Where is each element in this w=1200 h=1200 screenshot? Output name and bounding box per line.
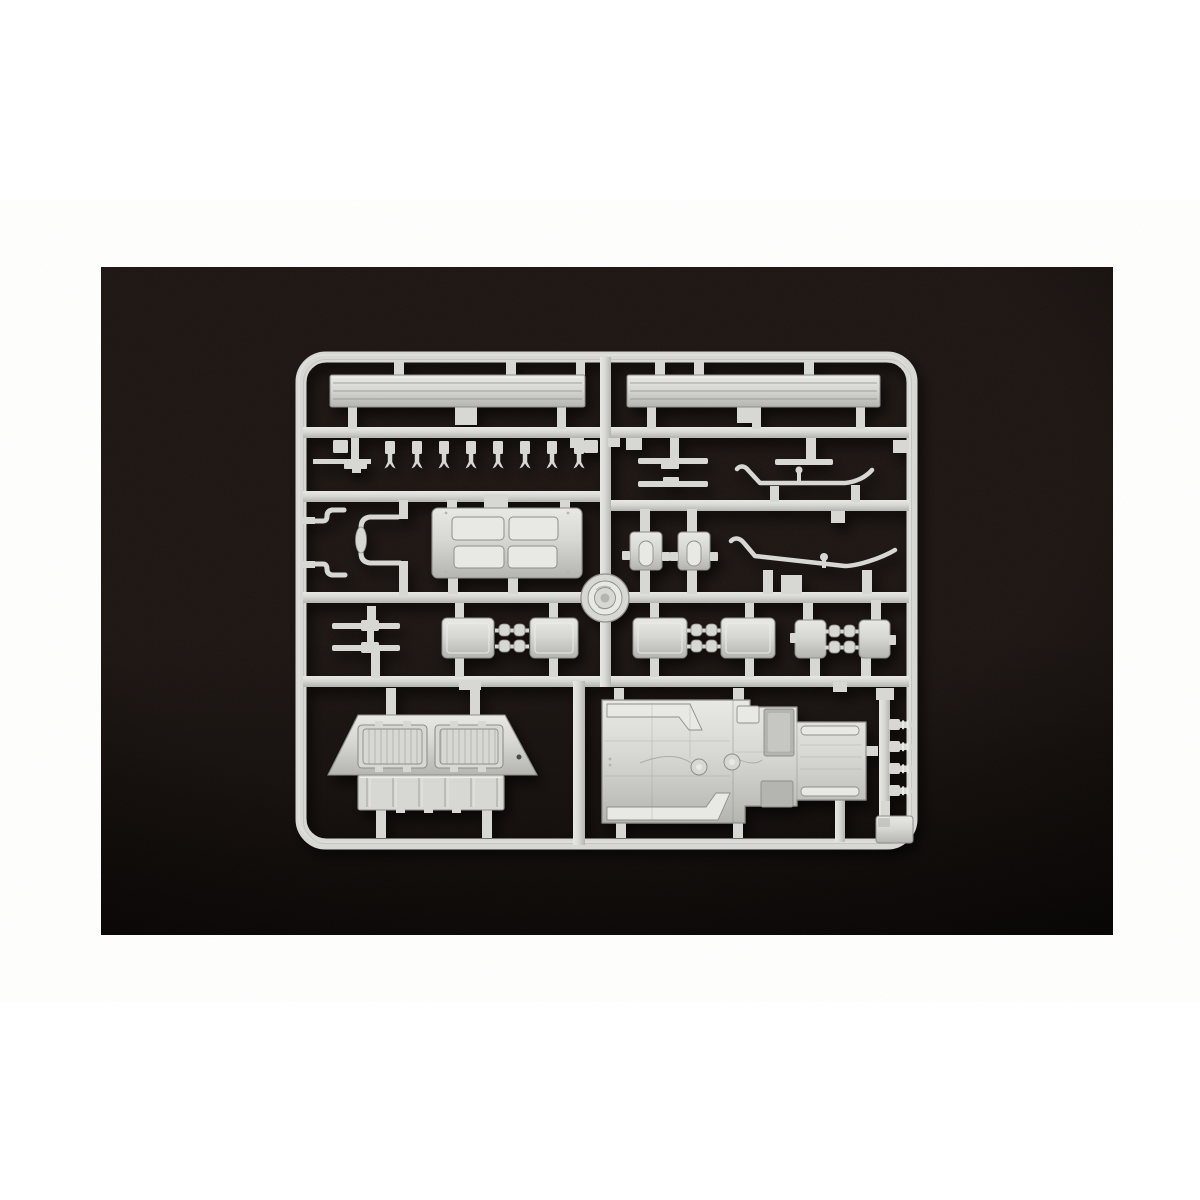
- runner-vertical-center: [600, 357, 611, 687]
- part-corner-pad: [876, 816, 913, 843]
- sprue-photo-svg: [0, 0, 1200, 1200]
- sprue-photo: Light grey injection-moulded model kit s…: [0, 0, 1200, 1200]
- part-plank-right: [627, 375, 880, 407]
- runner-vertical-bottom: [573, 681, 585, 845]
- runner-vertical-pegs: [879, 688, 890, 818]
- runner-horizontal-2-right: [606, 500, 909, 511]
- part-road-wheel: [581, 574, 629, 622]
- rear-deck-flap: [358, 775, 504, 813]
- rear-deck-hatch-right: [435, 721, 503, 772]
- page: Light grey injection-moulded model kit s…: [0, 0, 1200, 1200]
- sprue: [299, 355, 913, 845]
- part-plank-left: [330, 375, 585, 407]
- rear-deck-hatch-left: [358, 721, 427, 772]
- part-engine-deck-panel: [432, 508, 582, 578]
